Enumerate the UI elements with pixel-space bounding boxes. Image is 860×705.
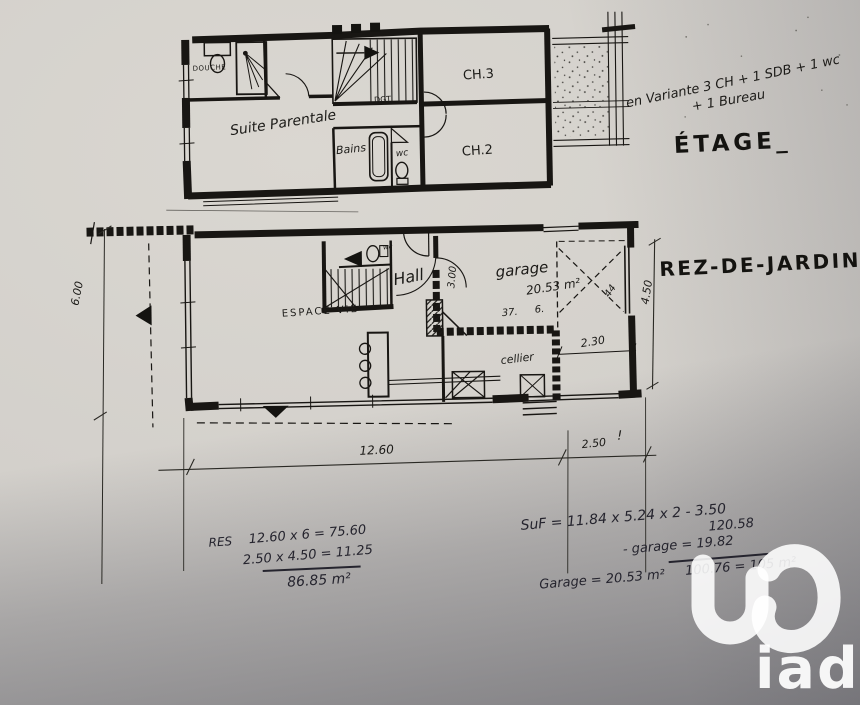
rez-de-jardin-plan: [86, 215, 641, 428]
label-ch2: CH.2: [462, 144, 494, 159]
dim-garage-depth: 3.00: [447, 266, 459, 289]
iad-brand-text: iad: [755, 636, 860, 702]
etage-plan: [164, 9, 849, 214]
calc-left-total: 86.85 m²: [287, 572, 352, 590]
dim-bottom-right: 2.50: [581, 437, 606, 450]
dim-exclaim-mark: !: [617, 430, 622, 443]
label-dgt: DGT: [374, 96, 391, 105]
label-ch3: CH.3: [463, 68, 495, 83]
label-wc-rdj: wc: [383, 244, 393, 252]
calc-right-line1-result: 120.58: [708, 517, 754, 534]
label-wc-etage: wc: [396, 149, 409, 159]
dim-bottom-main: 12.60: [359, 443, 394, 457]
annotation-6: 6.: [534, 305, 544, 316]
dim-garage-door: 2.30: [580, 334, 606, 349]
iad-watermark: iad: [655, 540, 860, 705]
etage-title: ÉTAGE_: [673, 129, 791, 158]
calc-left-label: RES: [208, 535, 232, 548]
label-bains: Bains: [335, 142, 366, 156]
floor-plan-photo: DOUCHE Suite Parentale DGT Bains wc CH.3…: [0, 0, 860, 705]
annotation-37: 37.: [502, 308, 519, 319]
